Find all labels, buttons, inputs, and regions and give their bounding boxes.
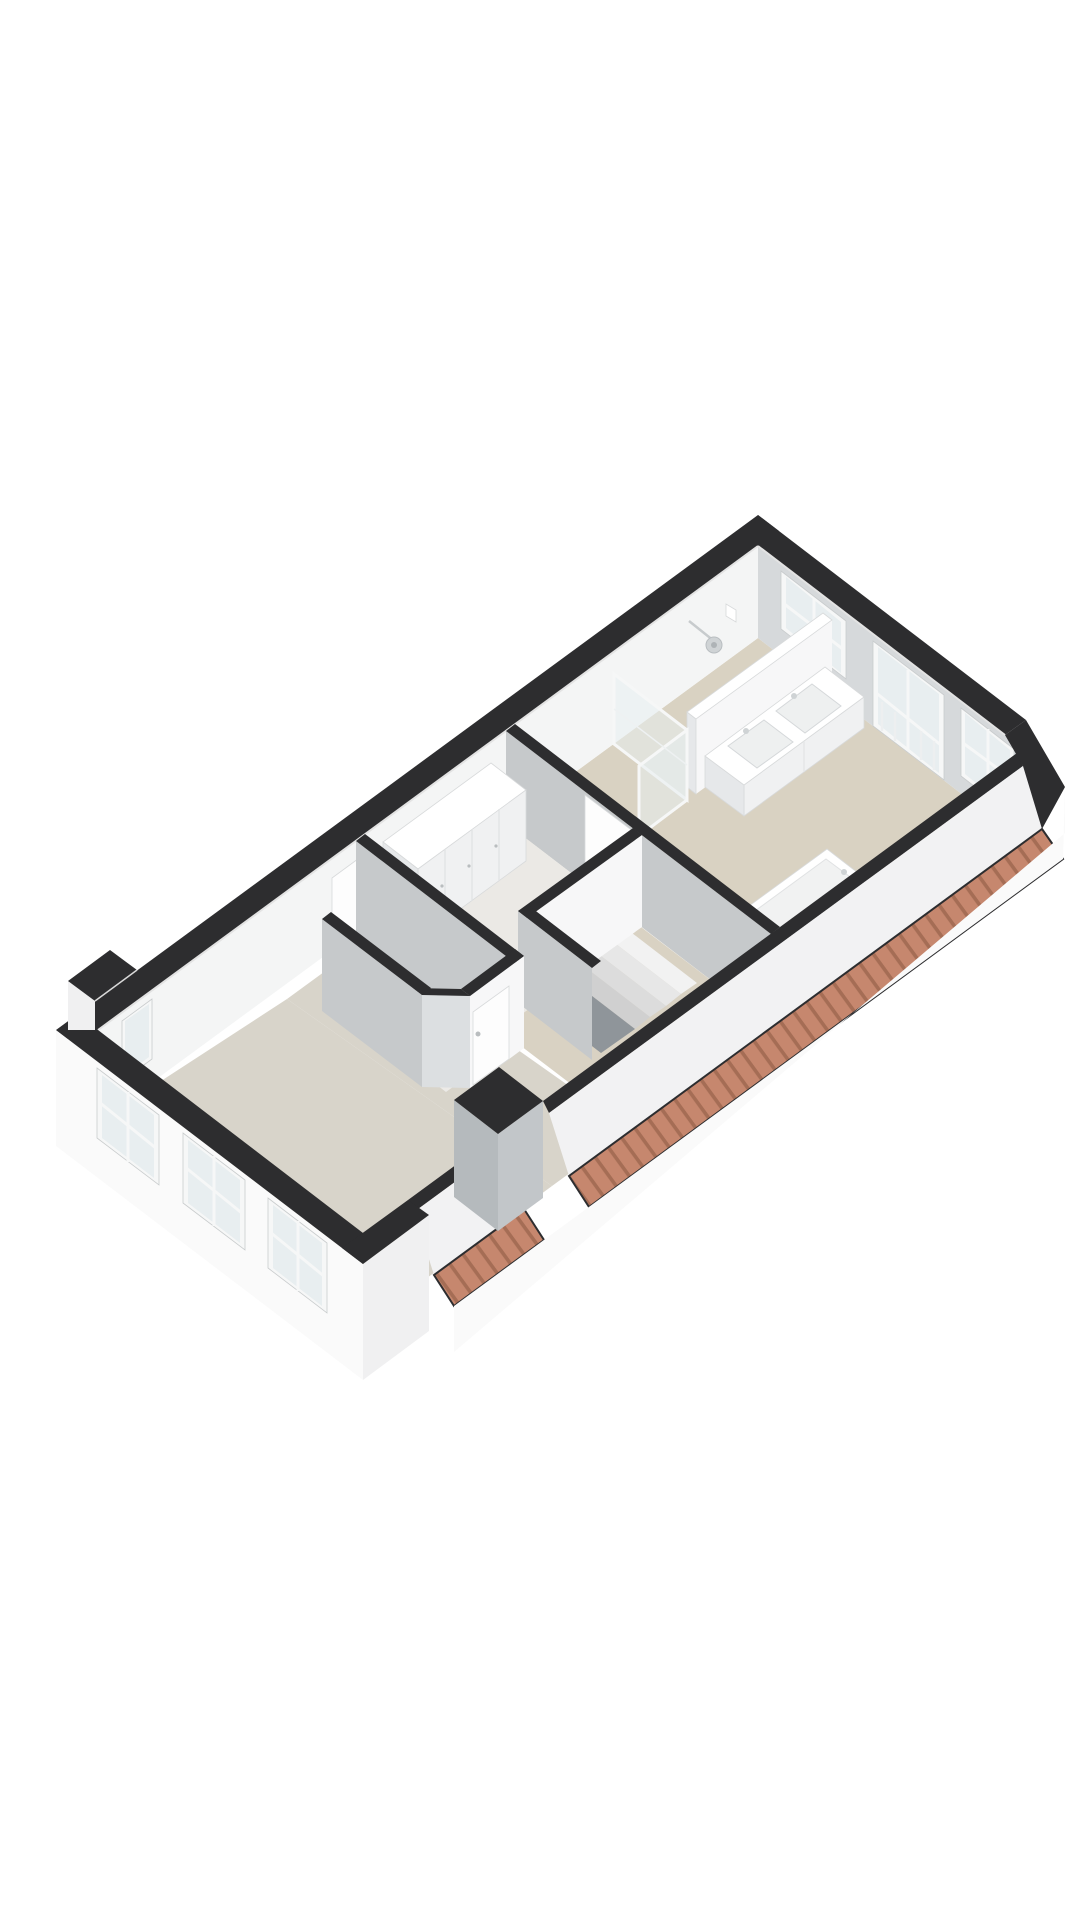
chimney-block	[454, 1067, 543, 1231]
basin-faucet-2	[743, 728, 749, 734]
bathtub-faucet	[841, 869, 847, 875]
shower-head-center	[711, 642, 717, 648]
door-handle	[476, 1032, 481, 1037]
wardrobe-handle	[494, 844, 497, 847]
basin-faucet-1	[791, 693, 797, 699]
floorplan-3d	[0, 0, 1080, 1920]
floorplan-canvas	[0, 0, 1080, 1920]
wardrobe-handle	[467, 864, 470, 867]
toilet-wall-corner-face	[422, 995, 470, 1088]
wardrobe-handle	[440, 884, 443, 887]
